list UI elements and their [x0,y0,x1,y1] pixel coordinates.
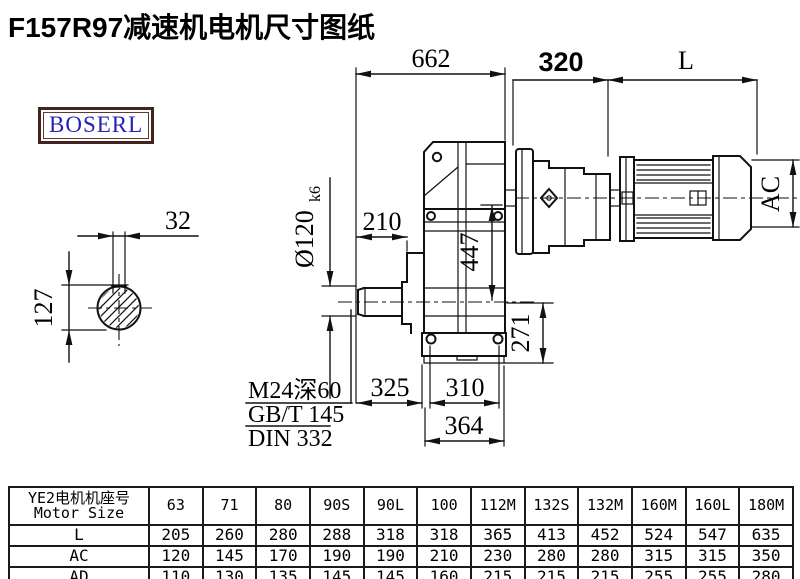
dimension-L: L [608,46,757,154]
cell: 135 [256,567,310,579]
row-label: AC [9,546,149,567]
table-row-AC: AC 120 145 170 190 190 210 230 280 280 3… [9,546,793,567]
col-header: 100 [417,487,471,525]
dim-key-width: 32 [165,206,191,235]
table-row-AD: AD 110 130 135 145 145 160 215 215 215 2… [9,567,793,579]
cell: 547 [686,525,740,546]
cell: 260 [203,525,257,546]
dimension-210: 210 [357,207,407,251]
cell: 190 [364,546,418,567]
cell: 145 [364,567,418,579]
col-header: 160L [686,487,740,525]
cell: 230 [471,546,525,567]
cell: 280 [739,567,793,579]
cell: 110 [149,567,203,579]
dim-adapter-length: 320 [538,47,583,77]
dimension-325: 325 [357,365,422,408]
cell: 315 [632,546,686,567]
cell: 215 [578,567,632,579]
cell: 413 [525,525,579,546]
col-header: 180M [739,487,793,525]
cell: 635 [739,525,793,546]
dimension-271: 271 [504,303,553,363]
cell: 365 [471,525,525,546]
table-row-L: L 205 260 280 288 318 318 365 413 452 52… [9,525,793,546]
cell: 190 [310,546,364,567]
dimension-320: 320 [513,47,608,156]
dim-shaft-extension: 210 [363,207,402,236]
cell: 315 [686,546,740,567]
col-header: 160M [632,487,686,525]
col-header: 132S [525,487,579,525]
drawing-page: F157R97减速机电机尺寸图纸 BOSERL [0,0,800,579]
col-header: 63 [149,487,203,525]
cell: 130 [203,567,257,579]
cell: 170 [256,546,310,567]
col-header: 112M [471,487,525,525]
cell: 280 [256,525,310,546]
dim-foot-bolt-spacing: 310 [446,373,485,402]
note-tap: M24深60 [248,377,341,404]
dimension-447: 447 [455,205,502,300]
cell: 205 [149,525,203,546]
cell: 145 [310,567,364,579]
cell: 120 [149,546,203,567]
col-header: 90L [364,487,418,525]
col-header: 90S [310,487,364,525]
dim-shaft-tolerance: k6 [307,186,324,202]
dim-motor-diameter: AC [756,176,785,212]
header-motor-size: YE2电机机座号 Motor Size [9,487,149,525]
cell: 280 [525,546,579,567]
cell: 524 [632,525,686,546]
motor-dimension-table: YE2电机机座号 Motor Size 63 71 80 90S 90L 100… [8,486,794,579]
front-view-motor [505,149,798,254]
cell: 452 [578,525,632,546]
dim-input-height: 447 [455,233,484,272]
dimension-shaft-dia: Ø120 k6 [290,178,356,398]
section-hatching [80,239,160,373]
cell: 145 [203,546,257,567]
col-header: 80 [256,487,310,525]
header-motor-size-en: Motor Size [34,504,124,522]
note-din: DIN 332 [248,426,333,452]
dim-shaft-to-foot: 325 [371,373,410,402]
cell: 318 [364,525,418,546]
dim-center-height: 271 [506,314,535,353]
dim-overall-length: 662 [412,44,451,73]
row-label: L [9,525,149,546]
dim-motor-length: L [678,46,694,75]
cell: 160 [417,567,471,579]
cell: 288 [310,525,364,546]
col-header: 132M [578,487,632,525]
thread-notes: M24深60 GB/T 145 DIN 332 [246,310,352,452]
note-gb: GB/T 145 [248,402,344,428]
cell: 210 [417,546,471,567]
cell: 255 [632,567,686,579]
cell: 215 [525,567,579,579]
cell: 215 [471,567,525,579]
dim-shaft-key-height: 127 [29,289,58,328]
dim-foot-width: 364 [445,411,484,440]
dim-shaft-diameter: Ø120 [290,210,319,268]
row-label: AD [9,567,149,579]
cell: 255 [686,567,740,579]
table-header-row: YE2电机机座号 Motor Size 63 71 80 90S 90L 100… [9,487,793,525]
cell: 318 [417,525,471,546]
technical-drawing: 32 127 [0,0,800,480]
cell: 350 [739,546,793,567]
col-header: 71 [203,487,257,525]
cell: 280 [578,546,632,567]
dimension-AC: AC [752,160,799,227]
side-view-shaft-section: 32 127 [29,206,198,373]
